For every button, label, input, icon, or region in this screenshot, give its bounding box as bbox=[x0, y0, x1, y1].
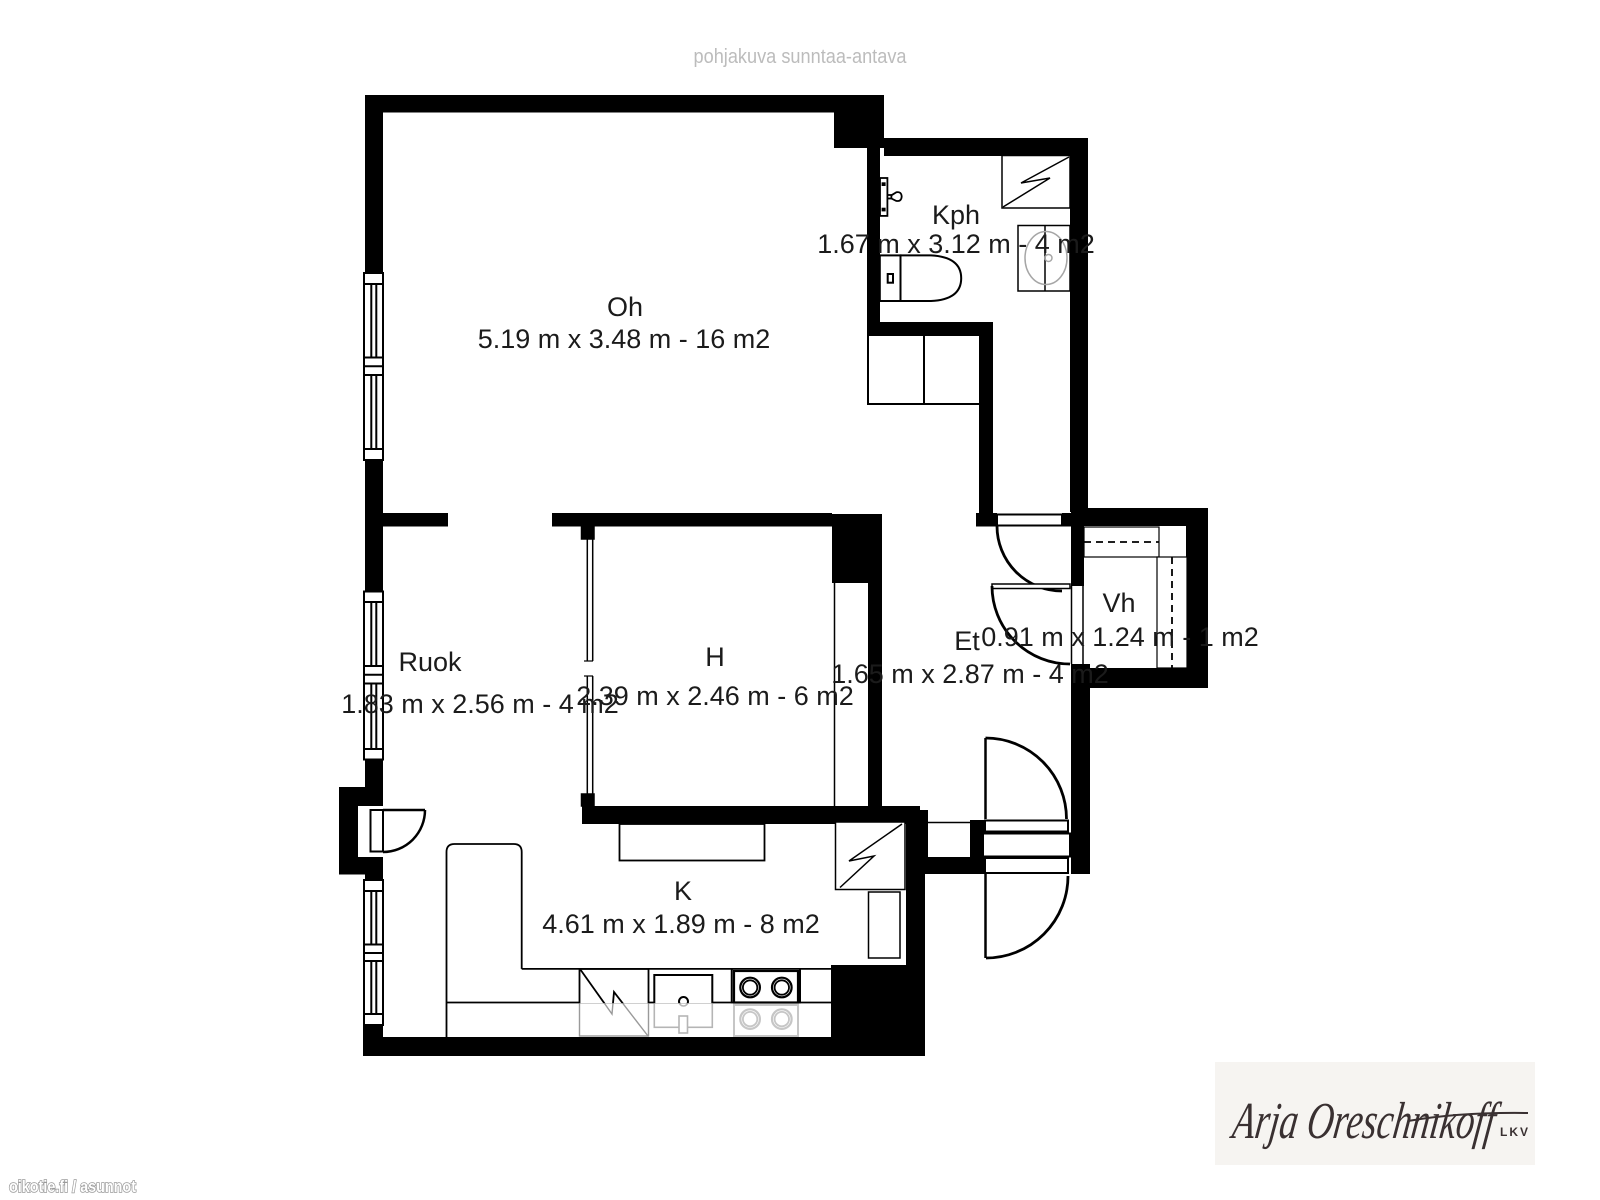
svg-text:Oh: Oh bbox=[607, 292, 643, 322]
svg-text:oikotie.fi / asunnot: oikotie.fi / asunnot bbox=[9, 1177, 136, 1196]
svg-text:Ruok: Ruok bbox=[398, 647, 462, 677]
svg-text:Vh: Vh bbox=[1102, 588, 1135, 618]
svg-text:5.19 m x 3.48 m - 16 m2: 5.19 m x 3.48 m - 16 m2 bbox=[478, 324, 771, 354]
svg-text:LKV: LKV bbox=[1500, 1125, 1530, 1139]
svg-text:1.67 m x 3.12 m - 4 m2: 1.67 m x 3.12 m - 4 m2 bbox=[817, 229, 1095, 259]
svg-text:K: K bbox=[674, 876, 692, 906]
svg-text:Et: Et bbox=[954, 626, 980, 656]
svg-text:4.61 m x 1.89 m - 8 m2: 4.61 m x 1.89 m - 8 m2 bbox=[542, 909, 820, 939]
svg-text:2.39 m x 2.46 m - 6 m2: 2.39 m x 2.46 m - 6 m2 bbox=[576, 681, 854, 711]
svg-text:pohjakuva sunntaa-antava: pohjakuva sunntaa-antava bbox=[694, 46, 908, 68]
svg-text:Arja Oreschnikoff: Arja Oreschnikoff bbox=[1227, 1092, 1504, 1150]
svg-text:1.65 m x 2.87 m - 4 m2: 1.65 m x 2.87 m - 4 m2 bbox=[831, 659, 1109, 689]
svg-text:0.91 m x 1.24 m - 1 m2: 0.91 m x 1.24 m - 1 m2 bbox=[981, 622, 1259, 652]
svg-text:H: H bbox=[705, 642, 725, 672]
svg-text:Kph: Kph bbox=[932, 200, 980, 230]
